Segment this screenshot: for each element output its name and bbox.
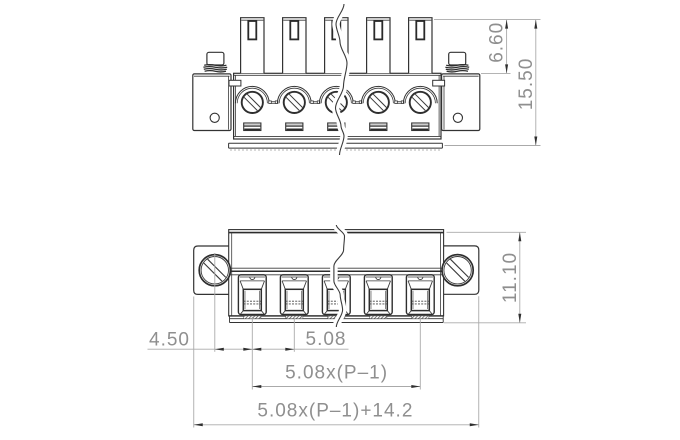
svg-text:11.10: 11.10	[500, 252, 521, 303]
svg-text:6.60: 6.60	[487, 22, 508, 63]
svg-text:5.08x(P–1)+14.2: 5.08x(P–1)+14.2	[257, 400, 413, 421]
svg-text:4.50: 4.50	[149, 330, 190, 351]
svg-text:5.08: 5.08	[306, 329, 347, 350]
svg-text:15.50: 15.50	[516, 58, 537, 111]
svg-text:5.08x(P–1): 5.08x(P–1)	[285, 362, 388, 383]
